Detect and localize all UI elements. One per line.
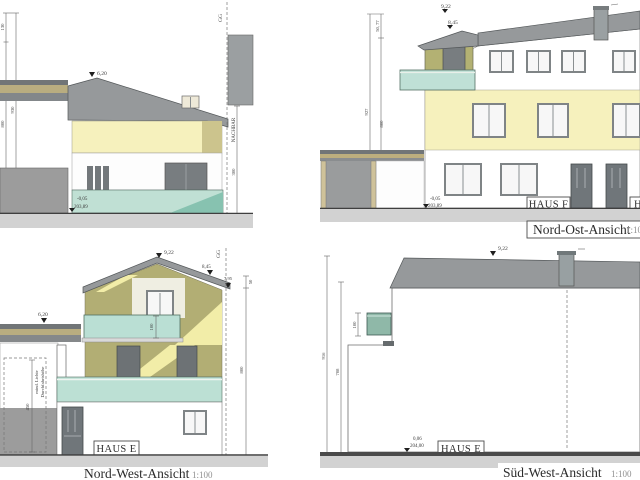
view-title: Nord-Ost-Ansicht xyxy=(533,222,631,237)
boundary-label: GG xyxy=(216,250,222,258)
ridge-level-label: 9,22 xyxy=(498,246,508,252)
dormer-door xyxy=(443,47,465,72)
dimension-label: 916 xyxy=(321,352,326,360)
view-scale: 1:100 xyxy=(611,469,632,479)
facade-upper-band xyxy=(72,121,222,153)
facade-yellow-band xyxy=(425,90,640,150)
view-nord-west: 6,20 450 mind. Lichte Durchfahrtshöhe 9,… xyxy=(0,248,268,480)
ground-line xyxy=(320,452,640,456)
boundary-label: GG xyxy=(218,14,224,22)
dimension-label: 927 xyxy=(364,108,369,116)
level-marker-icon xyxy=(89,72,95,77)
window-slats xyxy=(87,166,109,190)
chimney-dim-tick xyxy=(611,4,618,5)
carport-roof-edge xyxy=(320,150,424,154)
ridge-level-label: 6,20 xyxy=(97,71,107,77)
window-row-upper xyxy=(473,104,640,137)
entrance-door xyxy=(606,164,627,208)
dimension-label: 130 xyxy=(0,23,5,31)
carport-roof-shadow xyxy=(320,158,424,161)
dimension-label: 800 xyxy=(239,366,244,374)
window-slat xyxy=(95,166,101,190)
balcony-bracket xyxy=(383,341,394,346)
roof-wood-stripe xyxy=(0,329,81,335)
level-label: 204,00 xyxy=(410,444,424,449)
balcony-slab xyxy=(82,338,183,342)
window-slat xyxy=(87,166,93,190)
main-roof xyxy=(68,78,228,127)
level-label: 0,06 xyxy=(413,437,422,442)
clearance-label: Durchfahrtshöhe xyxy=(40,367,45,398)
clearance-label: mind. Lichte xyxy=(34,370,39,393)
roof-wood-stripe xyxy=(0,85,68,93)
dimension-label: 50, 77 xyxy=(375,20,381,32)
neighbor-building xyxy=(228,35,253,105)
carport-post xyxy=(321,161,326,208)
dark-window xyxy=(117,346,140,377)
building-wall xyxy=(348,288,640,452)
drawing-svg: 130 930 800 6,20 -0,05 203,8 xyxy=(0,0,640,480)
dimension-label: 800 xyxy=(379,120,384,128)
window-slat xyxy=(103,166,109,190)
main-roof xyxy=(390,258,640,288)
ridge-level-label: 9,22 xyxy=(164,250,174,256)
roof-edge-stripe xyxy=(0,80,68,85)
plinth-teal-band xyxy=(57,377,222,402)
view-title: Nord-West-Ansicht xyxy=(84,466,190,480)
entrance-door xyxy=(62,407,83,455)
neighbor-label: NACHBAR xyxy=(232,117,237,142)
window-row-attic xyxy=(490,51,635,72)
dimension-label: 300 xyxy=(231,168,236,176)
elevation-drawing-sheet: 130 930 800 6,20 -0,05 203,8 xyxy=(0,0,640,480)
view-scale: 1:100 xyxy=(626,225,640,235)
adjacent-wall xyxy=(0,168,68,213)
carport-roof-wood xyxy=(320,154,424,158)
adjacent-roof-band xyxy=(0,80,68,101)
facade-upper-shade xyxy=(202,121,222,153)
dimension-label: 708 xyxy=(335,368,340,376)
carport xyxy=(320,150,424,208)
level-label: -0,05 xyxy=(430,197,441,202)
roof-shadow-stripe xyxy=(0,93,68,101)
ground-strip xyxy=(320,209,640,222)
level-marker-icon xyxy=(442,9,448,13)
carport-post xyxy=(371,161,376,208)
level-label: 203,89 xyxy=(74,205,88,210)
view-title: Süd-West-Ansicht xyxy=(503,465,602,480)
level-label: -0,05 xyxy=(77,197,88,202)
roof-shadow-stripe xyxy=(0,335,81,342)
balcony xyxy=(84,315,180,339)
carport-level-label: 6,20 xyxy=(38,312,48,318)
house-label: HAUS E xyxy=(96,444,136,455)
view-nord-ost: 50, 77 927 800 9,22 8,45 xyxy=(320,4,640,238)
level-marker-icon xyxy=(490,251,496,256)
clearance-dim-label: 450 xyxy=(25,403,30,411)
chimney xyxy=(559,253,574,286)
view-sued-west: 916 708 9,22 100 0,06 204,00 HAUS E Süd- xyxy=(320,246,640,480)
chimney-cap xyxy=(593,6,609,10)
balcony-dim-label: 100 xyxy=(149,323,154,331)
level-marker-icon xyxy=(447,25,453,29)
dark-window xyxy=(177,346,197,377)
balcony-dim-label: 100 xyxy=(352,321,357,329)
roof-edge-stripe xyxy=(0,324,81,329)
carport-roof-band xyxy=(0,324,81,342)
ground-strip xyxy=(0,214,253,228)
chimney-cap xyxy=(557,251,576,255)
view-scale: 1:100 xyxy=(192,470,213,480)
entrance-door xyxy=(571,164,592,208)
chimney xyxy=(594,8,608,40)
dimension-label: 50 xyxy=(248,279,253,284)
level-marker-icon xyxy=(41,318,47,323)
view-top-left: 130 930 800 6,20 -0,05 203,8 xyxy=(0,2,253,228)
carport-interior xyxy=(326,161,371,208)
eave-level-label: 8,45 xyxy=(202,265,211,270)
carport-bay xyxy=(376,161,424,208)
dimension-label: 930 xyxy=(10,106,15,114)
level-marker-icon xyxy=(207,270,213,275)
dimension-label: 800 xyxy=(0,120,5,128)
carport-wall-base xyxy=(0,408,58,455)
